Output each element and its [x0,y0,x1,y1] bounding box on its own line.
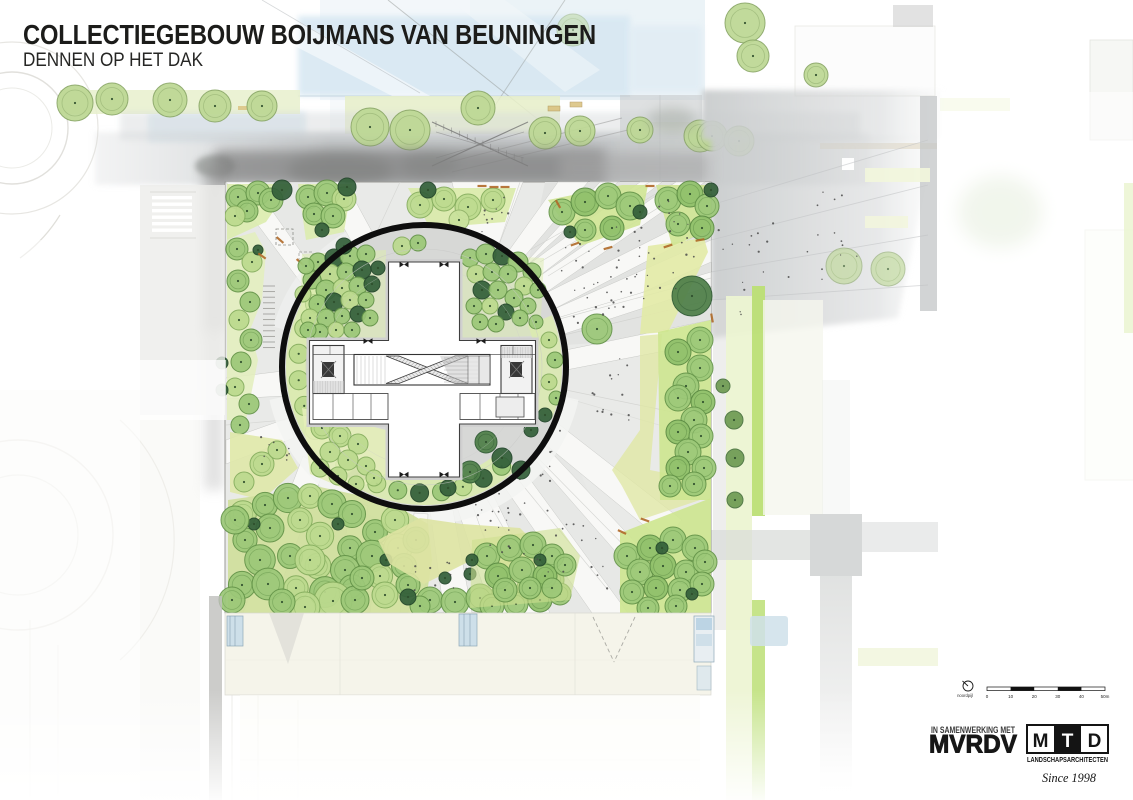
svg-text:40: 40 [1079,694,1085,699]
svg-text:M: M [1033,731,1049,752]
svg-text:COLLECTIEGEBOUW BOIJMANS VAN B: COLLECTIEGEBOUW BOIJMANS VAN BEUNINGEN [23,19,596,50]
svg-text:Since 1998: Since 1998 [1042,770,1096,785]
svg-text:noordpijl: noordpijl [957,693,973,698]
svg-text:50m: 50m [1101,694,1110,699]
svg-text:10: 10 [1008,694,1014,699]
svg-text:20: 20 [1032,694,1038,699]
svg-text:D: D [1088,731,1102,752]
svg-text:T: T [1062,731,1074,752]
svg-text:DENNEN OP HET DAK: DENNEN OP HET DAK [23,50,203,71]
svg-text:30: 30 [1055,694,1061,699]
svg-text:MVRDV: MVRDV [929,731,1017,759]
svg-text:LANDSCHAPSARCHITECTEN: LANDSCHAPSARCHITECTEN [1027,755,1108,764]
